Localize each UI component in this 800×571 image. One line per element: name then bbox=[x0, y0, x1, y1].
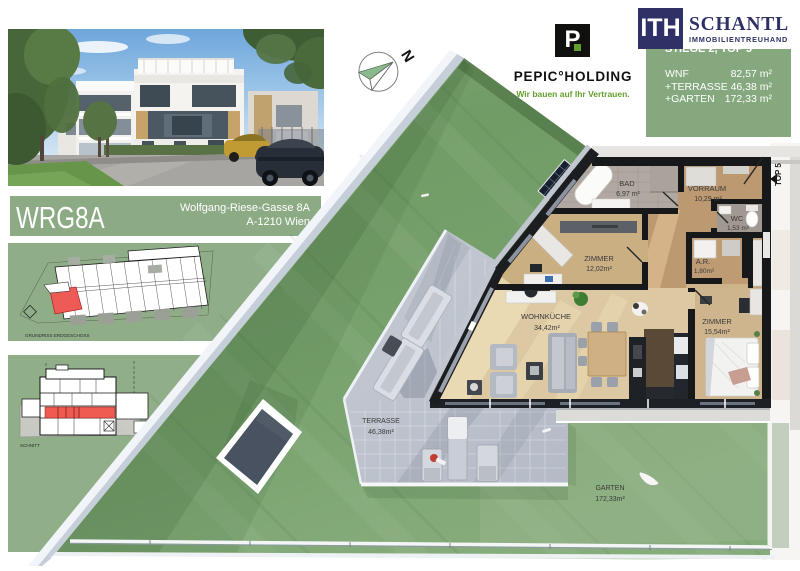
svg-text:46,38m²: 46,38m² bbox=[368, 429, 394, 436]
svg-text:34,42m²: 34,42m² bbox=[534, 325, 560, 332]
svg-text:BAD: BAD bbox=[619, 179, 635, 188]
svg-text:A.R.: A.R. bbox=[696, 257, 711, 266]
svg-text:TOP 5: TOP 5 bbox=[774, 163, 783, 186]
svg-text:12,02m²: 12,02m² bbox=[586, 266, 612, 273]
svg-text:WOHNKÜCHE: WOHNKÜCHE bbox=[521, 312, 571, 321]
svg-text:1,53 m²: 1,53 m² bbox=[727, 225, 750, 232]
svg-text:1,80m²: 1,80m² bbox=[694, 268, 715, 275]
svg-text:WC: WC bbox=[731, 214, 744, 223]
svg-text:VORRAUM: VORRAUM bbox=[688, 184, 726, 193]
svg-text:172,33m²: 172,33m² bbox=[595, 496, 625, 503]
svg-text:N: N bbox=[397, 47, 417, 65]
svg-text:ZIMMER: ZIMMER bbox=[584, 254, 614, 263]
svg-text:GARTEN: GARTEN bbox=[595, 485, 624, 492]
svg-text:6,97 m²: 6,97 m² bbox=[616, 191, 640, 198]
svg-text:TERRASSE: TERRASSE bbox=[362, 418, 400, 425]
svg-text:10,29 m²: 10,29 m² bbox=[694, 196, 722, 203]
svg-text:ZIMMER: ZIMMER bbox=[702, 317, 732, 326]
svg-text:15,54m²: 15,54m² bbox=[704, 329, 730, 336]
